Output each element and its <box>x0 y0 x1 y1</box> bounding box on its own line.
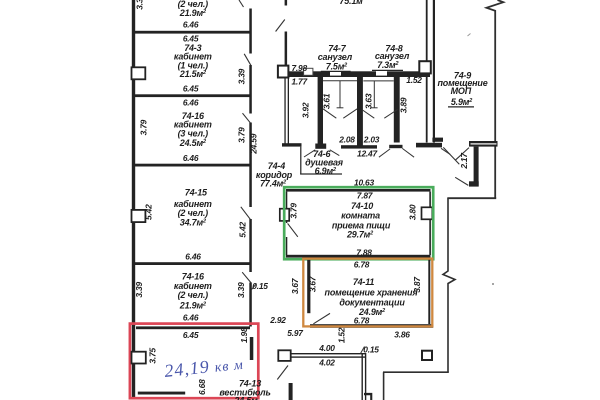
svg-text:6.46: 6.46 <box>183 20 199 30</box>
svg-text:6.78: 6.78 <box>354 259 370 269</box>
svg-text:3.39: 3.39 <box>135 0 145 10</box>
svg-text:2.03: 2.03 <box>363 135 380 145</box>
svg-text:6.46: 6.46 <box>183 153 199 163</box>
svg-text:10.63: 10.63 <box>354 178 375 188</box>
svg-text:4.02: 4.02 <box>318 358 335 368</box>
svg-text:3.89: 3.89 <box>399 97 409 113</box>
svg-text:5.97: 5.97 <box>287 328 303 338</box>
svg-text:1.77: 1.77 <box>291 76 307 86</box>
svg-text:документации: документации <box>339 297 405 307</box>
svg-text:МОП: МОП <box>451 86 472 96</box>
svg-text:помещение хранения: помещение хранения <box>325 288 419 298</box>
svg-text:6.46: 6.46 <box>183 97 199 107</box>
svg-text:34.7м2: 34.7м2 <box>180 217 206 227</box>
svg-text:1.52: 1.52 <box>337 327 347 343</box>
svg-text:5.42: 5.42 <box>143 204 153 220</box>
svg-text:3.67: 3.67 <box>290 278 300 294</box>
svg-text:3.87: 3.87 <box>412 277 422 293</box>
svg-text:3.75: 3.75 <box>147 348 157 364</box>
svg-text:3.79: 3.79 <box>236 127 246 143</box>
svg-text:3.80: 3.80 <box>408 204 418 220</box>
svg-text:7.87: 7.87 <box>357 190 373 200</box>
svg-text:3.39: 3.39 <box>236 68 246 84</box>
svg-text:4.00: 4.00 <box>318 343 335 353</box>
svg-text:2.08: 2.08 <box>338 135 355 145</box>
svg-text:6.46: 6.46 <box>183 313 199 323</box>
svg-text:6.9м2: 6.9м2 <box>315 166 336 176</box>
svg-text:21.9м2: 21.9м2 <box>179 300 206 310</box>
svg-text:21.5м2: 21.5м2 <box>179 69 206 79</box>
svg-text:комната: комната <box>341 211 380 221</box>
svg-text:1.98: 1.98 <box>239 327 249 343</box>
svg-text:(2 чел.): (2 чел.) <box>178 208 209 218</box>
svg-text:24.59: 24.59 <box>249 133 259 155</box>
svg-text:7.88: 7.88 <box>356 247 372 257</box>
svg-text:3.67: 3.67 <box>308 276 318 292</box>
svg-text:2.92: 2.92 <box>269 315 286 325</box>
svg-text:5.9м2: 5.9м2 <box>451 97 472 107</box>
svg-text:29.7м2: 29.7м2 <box>346 230 373 240</box>
svg-text:3.79: 3.79 <box>289 203 299 219</box>
svg-text:6.68: 6.68 <box>197 379 207 395</box>
svg-text:7.98: 7.98 <box>291 63 307 73</box>
svg-text:3.86: 3.86 <box>394 330 410 340</box>
svg-text:24.5м: 24.5м <box>233 396 258 400</box>
svg-text:74-15: 74-15 <box>185 188 208 198</box>
svg-text:6.45: 6.45 <box>183 83 199 93</box>
svg-text:(2 чел.): (2 чел.) <box>178 290 209 300</box>
svg-text:7.5м2: 7.5м2 <box>326 61 347 71</box>
svg-text:3.63: 3.63 <box>364 93 374 109</box>
svg-text:7.3м2: 7.3м2 <box>377 60 398 70</box>
svg-text:6.78: 6.78 <box>354 315 370 325</box>
svg-text:75.1м: 75.1м <box>339 0 363 6</box>
svg-text:24.5м2: 24.5м2 <box>179 138 206 148</box>
svg-text:74-11: 74-11 <box>353 277 375 287</box>
svg-text:74-10: 74-10 <box>351 201 373 211</box>
svg-text:6.45: 6.45 <box>183 330 199 340</box>
svg-text:3.79: 3.79 <box>138 119 148 135</box>
svg-text:2.17: 2.17 <box>459 153 469 170</box>
svg-text:0.15: 0.15 <box>363 345 379 355</box>
svg-text:21.9м2: 21.9м2 <box>179 8 206 18</box>
svg-text:3.39: 3.39 <box>134 282 144 298</box>
svg-text:5.42: 5.42 <box>237 222 247 238</box>
svg-text:1.52: 1.52 <box>406 75 422 85</box>
svg-text:3.92: 3.92 <box>301 102 311 118</box>
svg-text:77.4м2: 77.4м2 <box>260 179 286 189</box>
svg-text:3.39: 3.39 <box>236 282 246 298</box>
svg-text:6.46: 6.46 <box>185 252 201 262</box>
svg-text:12.47: 12.47 <box>357 148 378 158</box>
svg-text:3.61: 3.61 <box>322 93 332 109</box>
